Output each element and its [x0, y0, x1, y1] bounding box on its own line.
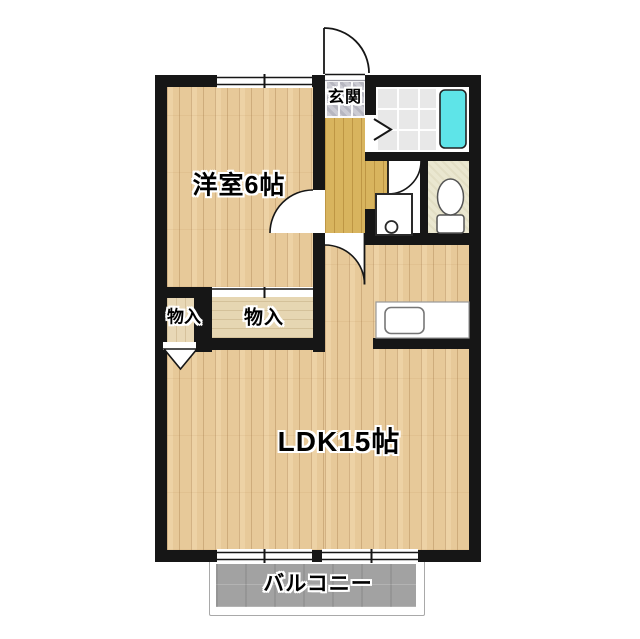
wall-bathroom-bottom	[365, 152, 469, 161]
wall-genkan-right-lower	[365, 209, 376, 245]
label-closet-right: 物入	[244, 309, 284, 328]
wall-top-mid	[312, 75, 325, 87]
ldk-door-opening	[325, 233, 365, 245]
bathtub	[436, 87, 469, 152]
wall-hall-ldk	[376, 233, 469, 245]
bathroom-door-band	[365, 115, 376, 152]
wall-left	[155, 75, 167, 562]
wall-bottom-right	[418, 550, 481, 562]
closet-right-door-band	[212, 287, 313, 297]
label-closet-left: 物入	[167, 309, 201, 326]
wall-top-right	[365, 75, 481, 87]
ldk-floor-right	[325, 245, 469, 550]
wall-room-hall-upper	[313, 87, 325, 190]
wall-toilet-left	[420, 161, 428, 233]
wall-closet-right-bottom	[212, 338, 313, 350]
washroom-entry-floor	[365, 161, 389, 209]
western-room-door-opening	[313, 190, 325, 233]
toilet-floor	[428, 161, 469, 233]
closet-left-door-band	[163, 342, 196, 350]
wall-genkan-right-upper	[365, 75, 376, 115]
wall-under-counter	[373, 338, 469, 349]
wall-bottom-mid	[312, 550, 322, 562]
label-balcony: バルコニー	[263, 574, 373, 595]
label-ldk: LDK15帖	[278, 428, 401, 456]
floor-plan: 玄関 洋室6帖 物入 物入 LDK15帖 バルコニー	[0, 0, 640, 639]
entrance-door	[324, 28, 369, 82]
bathroom-floor	[376, 87, 436, 152]
wall-closet-left-top	[167, 287, 194, 298]
wall-bottom-left	[155, 550, 217, 562]
wall-room-hall-lower	[313, 233, 325, 352]
label-western-room: 洋室6帖	[193, 174, 286, 199]
window-top	[217, 74, 312, 88]
label-entrance: 玄関	[328, 90, 362, 106]
wall-right	[469, 75, 481, 562]
